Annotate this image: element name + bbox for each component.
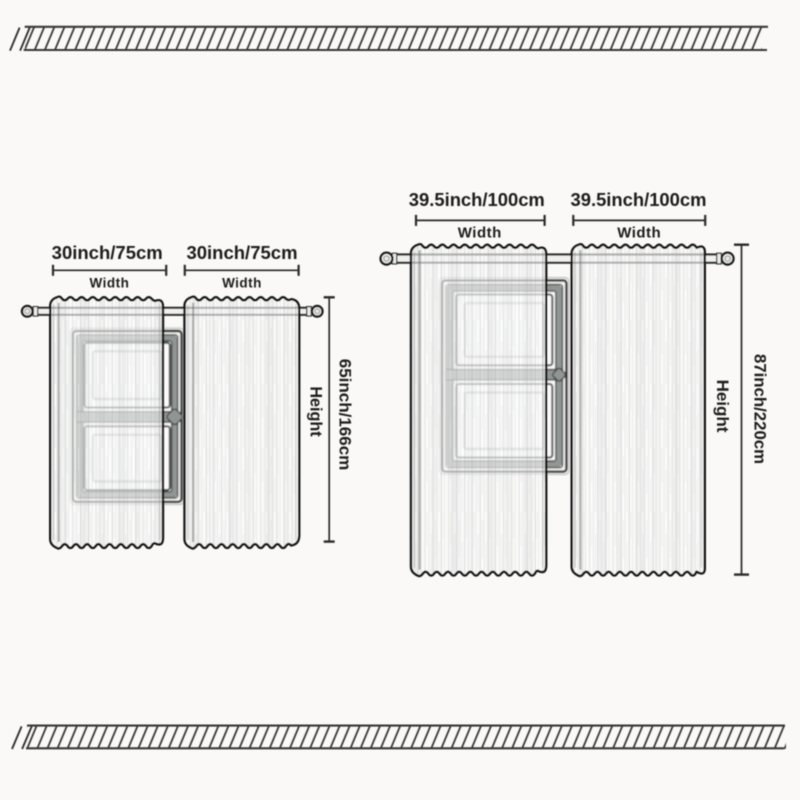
svg-text:Width: Width: [458, 225, 502, 242]
svg-text:87inch/220cm: 87inch/220cm: [751, 354, 770, 464]
svg-text:Width: Width: [89, 276, 129, 291]
svg-text:Height: Height: [306, 386, 324, 437]
svg-text:Width: Width: [617, 225, 661, 242]
svg-text:30inch/75cm: 30inch/75cm: [52, 242, 163, 263]
svg-text:Width: Width: [222, 276, 262, 291]
svg-text:39.5inch/100cm: 39.5inch/100cm: [571, 189, 707, 210]
svg-text:30inch/75cm: 30inch/75cm: [186, 242, 297, 263]
svg-text:Height: Height: [713, 380, 732, 433]
svg-text:39.5inch/100cm: 39.5inch/100cm: [409, 189, 545, 210]
svg-text:65inch/166cm: 65inch/166cm: [336, 359, 355, 471]
